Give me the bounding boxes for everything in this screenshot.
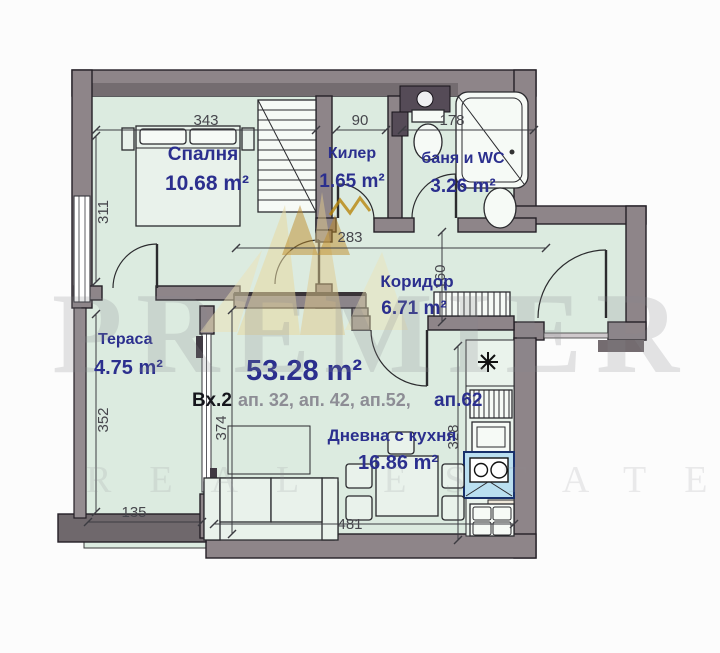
svg-text:311: 311 — [95, 200, 112, 224]
bathtub — [456, 92, 528, 188]
bedroom-wardrobe — [258, 100, 316, 212]
bedroom-label: Спалня — [168, 144, 238, 165]
nightstand-left — [122, 128, 134, 150]
svg-text:283: 283 — [337, 229, 362, 246]
nightstand-right — [242, 128, 254, 150]
svg-text:178: 178 — [439, 112, 464, 129]
watermark-tagline: REAL ESTATE — [86, 458, 686, 502]
closet-area: 1.65 m² — [319, 171, 384, 192]
floor-plan-page: 343 311 90 178 283 160 352 135 374 — [0, 0, 720, 653]
svg-text:374: 374 — [213, 415, 230, 440]
bathroom-label: баня и WC — [421, 150, 505, 167]
svg-text:481: 481 — [337, 516, 362, 533]
svg-text:343: 343 — [193, 112, 218, 129]
svg-text:90: 90 — [352, 112, 369, 129]
stove — [470, 504, 514, 536]
svg-text:352: 352 — [95, 407, 112, 432]
watermark-brand: PREMIER — [52, 268, 712, 400]
bathroom-area: 3.26 m² — [430, 176, 495, 197]
closet-label: Килер — [328, 145, 376, 162]
oven — [472, 422, 510, 452]
svg-text:135: 135 — [121, 504, 146, 521]
living-label: Дневна с кухня — [328, 426, 457, 445]
bedroom-area: 10.68 m² — [165, 172, 249, 195]
